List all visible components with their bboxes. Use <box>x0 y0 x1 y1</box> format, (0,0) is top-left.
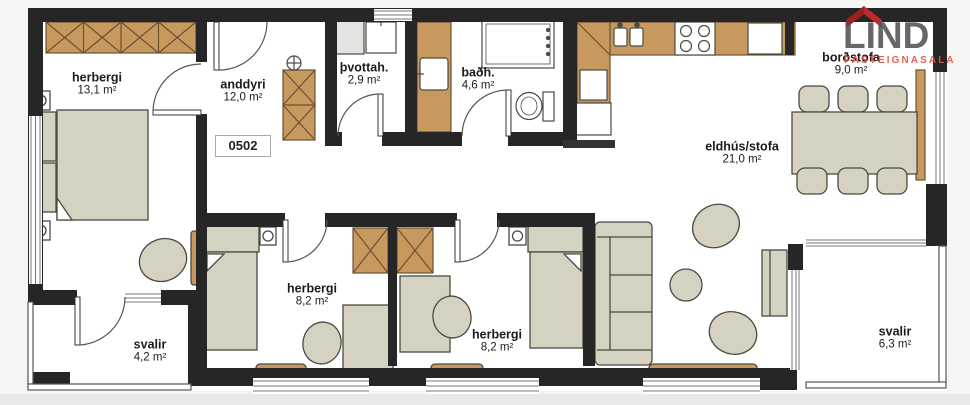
chair <box>799 86 829 112</box>
window-bedroom-2 <box>253 378 369 394</box>
window-balcony-2-top <box>806 238 926 248</box>
dishwasher-icon <box>580 70 607 100</box>
fridge-icon <box>748 23 782 54</box>
window-bedroom-3 <box>426 378 539 394</box>
window-living <box>643 378 760 394</box>
dining-table <box>792 112 917 174</box>
entrance-door-leaf <box>214 22 219 70</box>
window-laundry-top <box>374 9 412 21</box>
bath-door-leaf <box>506 90 511 136</box>
unit-number: 0502 <box>215 135 271 157</box>
wardrobe-master <box>46 22 196 53</box>
laundry-fixtures <box>328 18 396 54</box>
floor-plan <box>0 0 970 405</box>
balcony-door-leaf <box>75 297 80 345</box>
coffee-table <box>670 269 702 301</box>
chair <box>838 86 868 112</box>
chair <box>877 168 907 194</box>
bathroom-sink-icon <box>416 58 448 90</box>
chair <box>838 168 868 194</box>
wardrobe-bedroom-3 <box>397 228 433 273</box>
page-bottom-band <box>0 394 970 405</box>
toilet-icon <box>516 92 554 121</box>
laundry-door-leaf <box>378 94 383 136</box>
dining-set <box>792 86 917 194</box>
floor-plan-page: herbergi 13,1 m² anddyri 12,0 m² þvottah… <box>0 0 970 405</box>
nightstand <box>509 227 526 245</box>
window-balcony-1 <box>125 292 161 304</box>
sliding-door-balcony-2 <box>790 270 801 370</box>
chair <box>877 86 907 112</box>
bedroom-3-door-leaf <box>455 220 460 262</box>
tv-cabinet <box>762 250 787 316</box>
stove-icon <box>675 22 715 55</box>
desk <box>343 305 393 375</box>
wardrobe-bedroom-2 <box>353 228 388 273</box>
shower-icon <box>482 20 554 68</box>
window-dining-right <box>934 72 947 184</box>
wardrobe-anddyri <box>283 70 315 140</box>
ceiling-fixture-icon <box>287 56 301 70</box>
sofa <box>595 222 652 365</box>
master-door-leaf <box>153 110 201 115</box>
washer-icon <box>366 18 396 53</box>
window-left <box>29 116 42 284</box>
bedroom-2-door-leaf <box>283 220 288 262</box>
chair <box>797 168 827 194</box>
cabinet-icon <box>575 103 611 135</box>
